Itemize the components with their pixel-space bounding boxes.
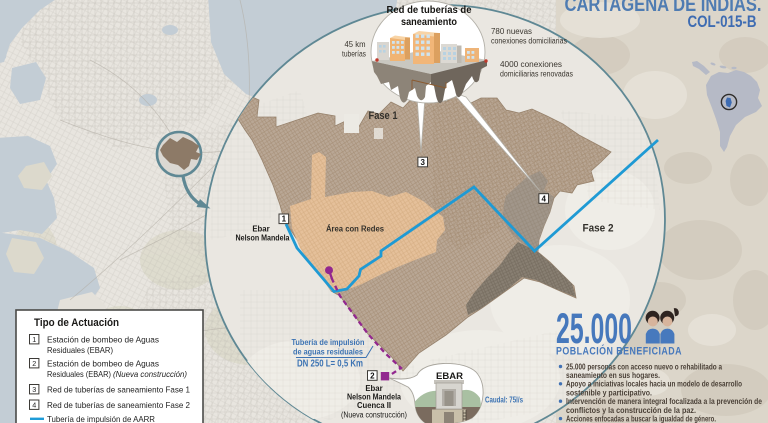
svg-text:1: 1 (282, 215, 287, 224)
svg-text:4: 4 (541, 194, 546, 203)
svg-text:1: 1 (32, 335, 36, 344)
svg-text:4: 4 (32, 401, 36, 410)
svg-text:2: 2 (370, 371, 375, 380)
svg-text:Estación de bombeo de Aguas: Estación de bombeo de Aguas (47, 359, 160, 369)
svg-text:Fase 2: Fase 2 (583, 223, 614, 235)
svg-text:Tipo de Actuación: Tipo de Actuación (34, 317, 119, 329)
svg-text:POBLACIÓN BENEFICIADA: POBLACIÓN BENEFICIADA (556, 345, 682, 358)
svg-text:Tubería de impulsión de AARR: Tubería de impulsión de AARR (47, 414, 155, 423)
svg-text:EBAR: EBAR (436, 371, 463, 382)
svg-text:Estación de bombeo de Aguas: Estación de bombeo de Aguas (47, 335, 160, 345)
svg-text:Nelson Mandela: Nelson Mandela (236, 234, 291, 243)
svg-text:Ebar: Ebar (252, 225, 269, 234)
svg-text:Residuales (EBAR) (Nueva const: Residuales (EBAR) (Nueva construcción) (47, 369, 187, 379)
svg-text:domiciliarias renovadas: domiciliarias renovadas (500, 70, 573, 79)
svg-text:Fase 1: Fase 1 (369, 110, 398, 122)
svg-text:Área con Redes: Área con Redes (326, 224, 384, 234)
svg-text:de aguas residuales: de aguas residuales (293, 347, 363, 357)
svg-text:conexiones domiciliarias: conexiones domiciliarias (491, 37, 567, 46)
svg-text:Red de tuberías de saneamiento: Red de tuberías de saneamiento Fase 1 (47, 385, 190, 395)
svg-text:Cuenca II: Cuenca II (357, 401, 391, 410)
svg-text:2: 2 (32, 359, 36, 368)
svg-text:3: 3 (420, 158, 425, 167)
svg-text:3: 3 (32, 385, 36, 394)
svg-text:4000 conexiones: 4000 conexiones (500, 60, 562, 69)
svg-text:Caudal: 75l/s: Caudal: 75l/s (485, 395, 523, 405)
svg-text:780 nuevas: 780 nuevas (491, 27, 532, 36)
svg-text:DN 250 L= 0,5 Km: DN 250 L= 0,5 Km (297, 359, 363, 370)
svg-text:45 km: 45 km (345, 40, 366, 49)
svg-text:Acciones enfocadas a buscar la: Acciones enfocadas a buscar la igualdad … (566, 414, 716, 423)
svg-text:saneamiento: saneamiento (401, 16, 457, 28)
svg-text:COL-015-B: COL-015-B (688, 12, 757, 31)
svg-text:Red de tuberías de saneamiento: Red de tuberías de saneamiento Fase 2 (47, 400, 190, 410)
svg-text:Tubería de impulsión: Tubería de impulsión (292, 337, 365, 347)
svg-text:Residuales (EBAR): Residuales (EBAR) (47, 345, 113, 355)
svg-text:Red de tuberías de: Red de tuberías de (387, 4, 472, 16)
svg-text:tuberías: tuberías (342, 50, 366, 59)
svg-text:(Nueva construcción): (Nueva construcción) (341, 411, 407, 420)
